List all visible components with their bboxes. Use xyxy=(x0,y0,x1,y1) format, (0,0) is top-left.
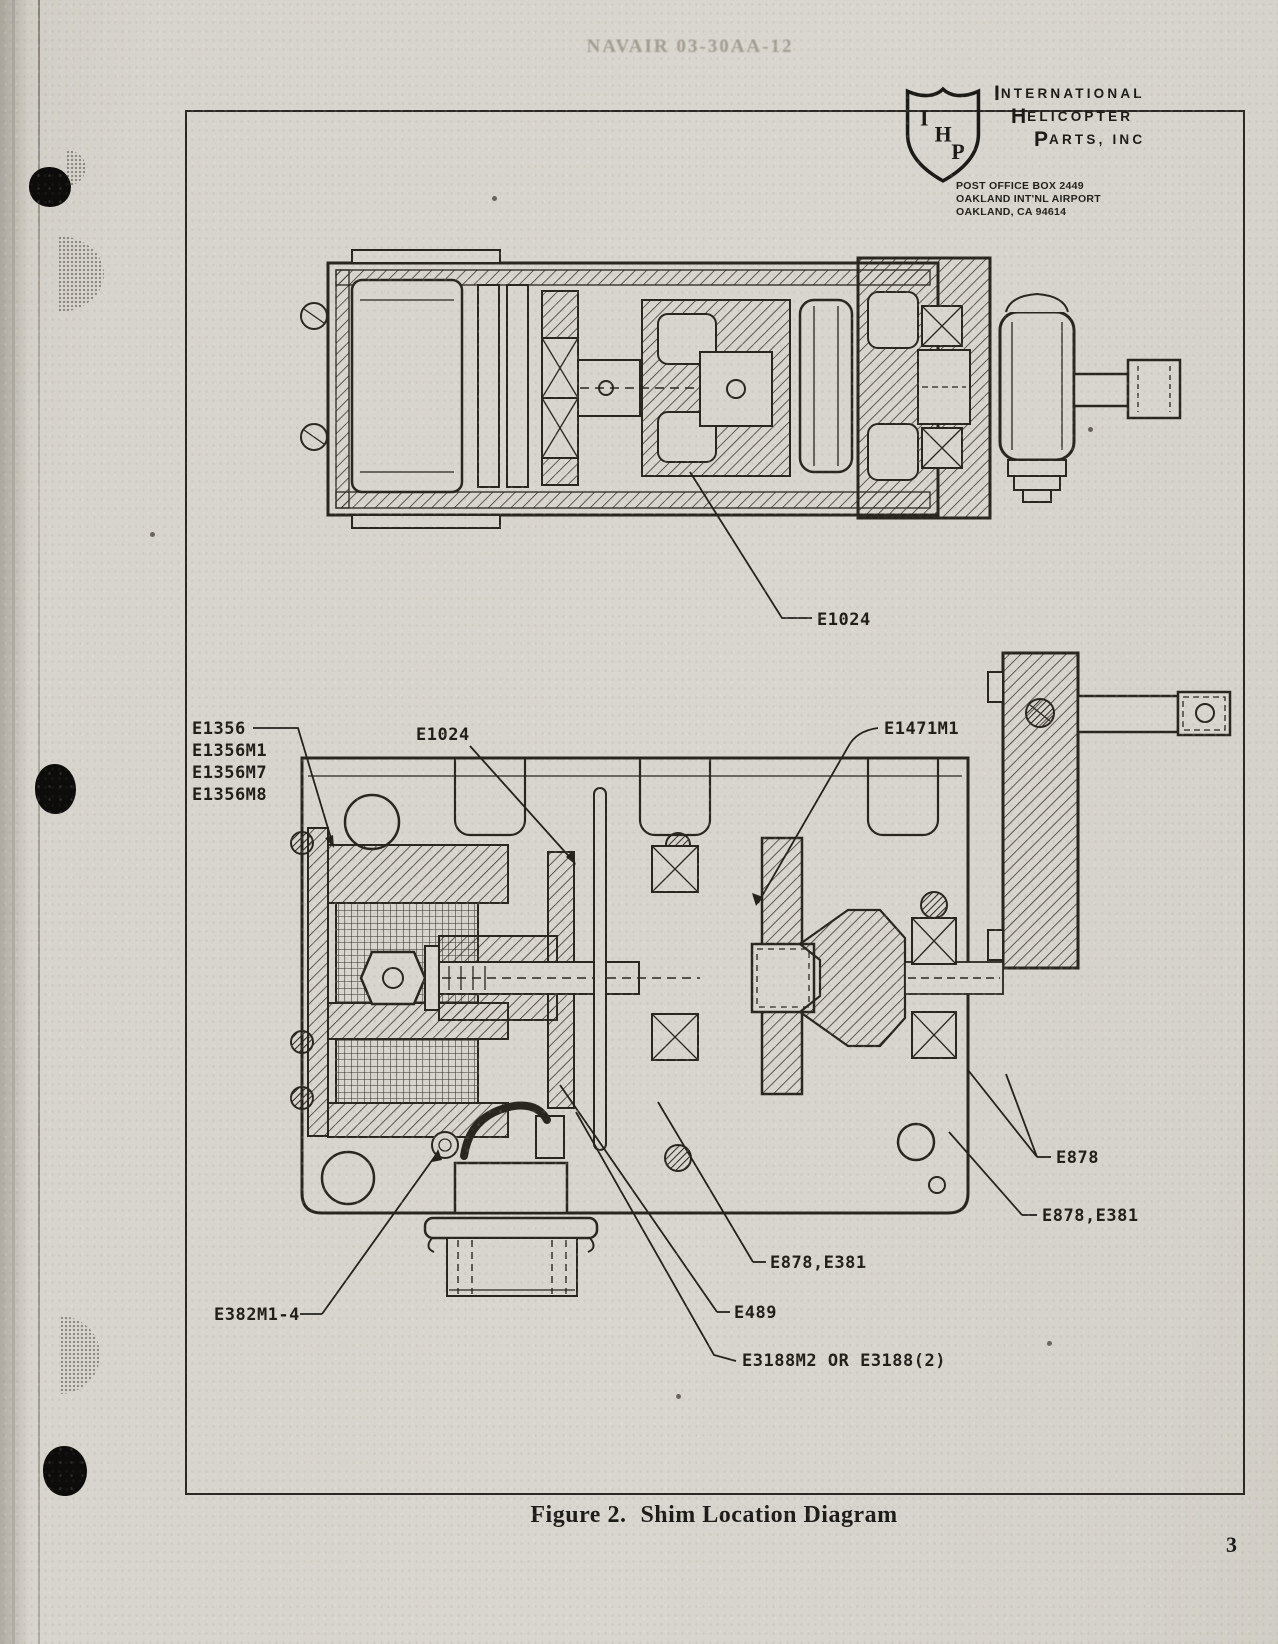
part-label-e878-e381-mid: E878,E381 xyxy=(770,1253,867,1273)
upper-cross-section: E1024 xyxy=(301,250,1180,630)
scanned-manual-page: NAVAIR 03-30AA-12 I H P INTERNATIONAL HE… xyxy=(0,0,1278,1644)
bearing-icon xyxy=(922,428,962,468)
part-label-e382m1-4: E382M1-4 xyxy=(214,1305,300,1325)
bearing-icon xyxy=(542,398,578,458)
part-label-e1471m1: E1471M1 xyxy=(884,719,959,739)
part-label-e878-e381-right: E878,E381 xyxy=(1042,1206,1139,1226)
leader-line xyxy=(968,1070,1037,1157)
part-label-e3188: E3188M2 OR E3188(2) xyxy=(742,1351,946,1371)
part-label-e1356m1: E1356M1 xyxy=(192,741,267,761)
armature xyxy=(352,280,462,492)
bearing-icon xyxy=(922,306,962,346)
part-label-e1356m8: E1356M8 xyxy=(192,785,267,805)
bearing-icon xyxy=(912,918,956,964)
page-number: 3 xyxy=(1226,1532,1237,1558)
shim-location-diagram: E1024 xyxy=(0,0,1278,1644)
lower-cross-section xyxy=(291,653,1230,1296)
adjusting-bolt xyxy=(361,946,439,1010)
bearing-icon xyxy=(912,1012,956,1058)
gear-section xyxy=(800,300,852,472)
figure-caption: Figure 2.Shim Location Diagram xyxy=(364,1502,1064,1529)
bearing-icon xyxy=(652,846,698,892)
part-label-e1024-mid: E1024 xyxy=(416,725,470,745)
part-label-e1356: E1356 xyxy=(192,719,246,739)
output-shaft xyxy=(1074,360,1180,418)
gear-hub xyxy=(752,944,814,1012)
bearing-icon xyxy=(542,338,578,398)
part-label-e1024-top: E1024 xyxy=(817,610,871,630)
drive-shaft xyxy=(1078,692,1230,735)
part-label-e878: E878 xyxy=(1056,1148,1099,1168)
part-label-e1356m7: E1356M7 xyxy=(192,763,267,783)
leader-line xyxy=(1006,1074,1037,1157)
output-coupling xyxy=(1000,294,1074,502)
case-screw-icon xyxy=(301,303,327,450)
part-label-e489: E489 xyxy=(734,1303,777,1323)
figure-label: Figure 2. xyxy=(530,1502,626,1528)
bearing-icon xyxy=(652,1014,698,1060)
figure-title: Shim Location Diagram xyxy=(640,1502,897,1528)
mounting-bracket xyxy=(988,653,1078,968)
